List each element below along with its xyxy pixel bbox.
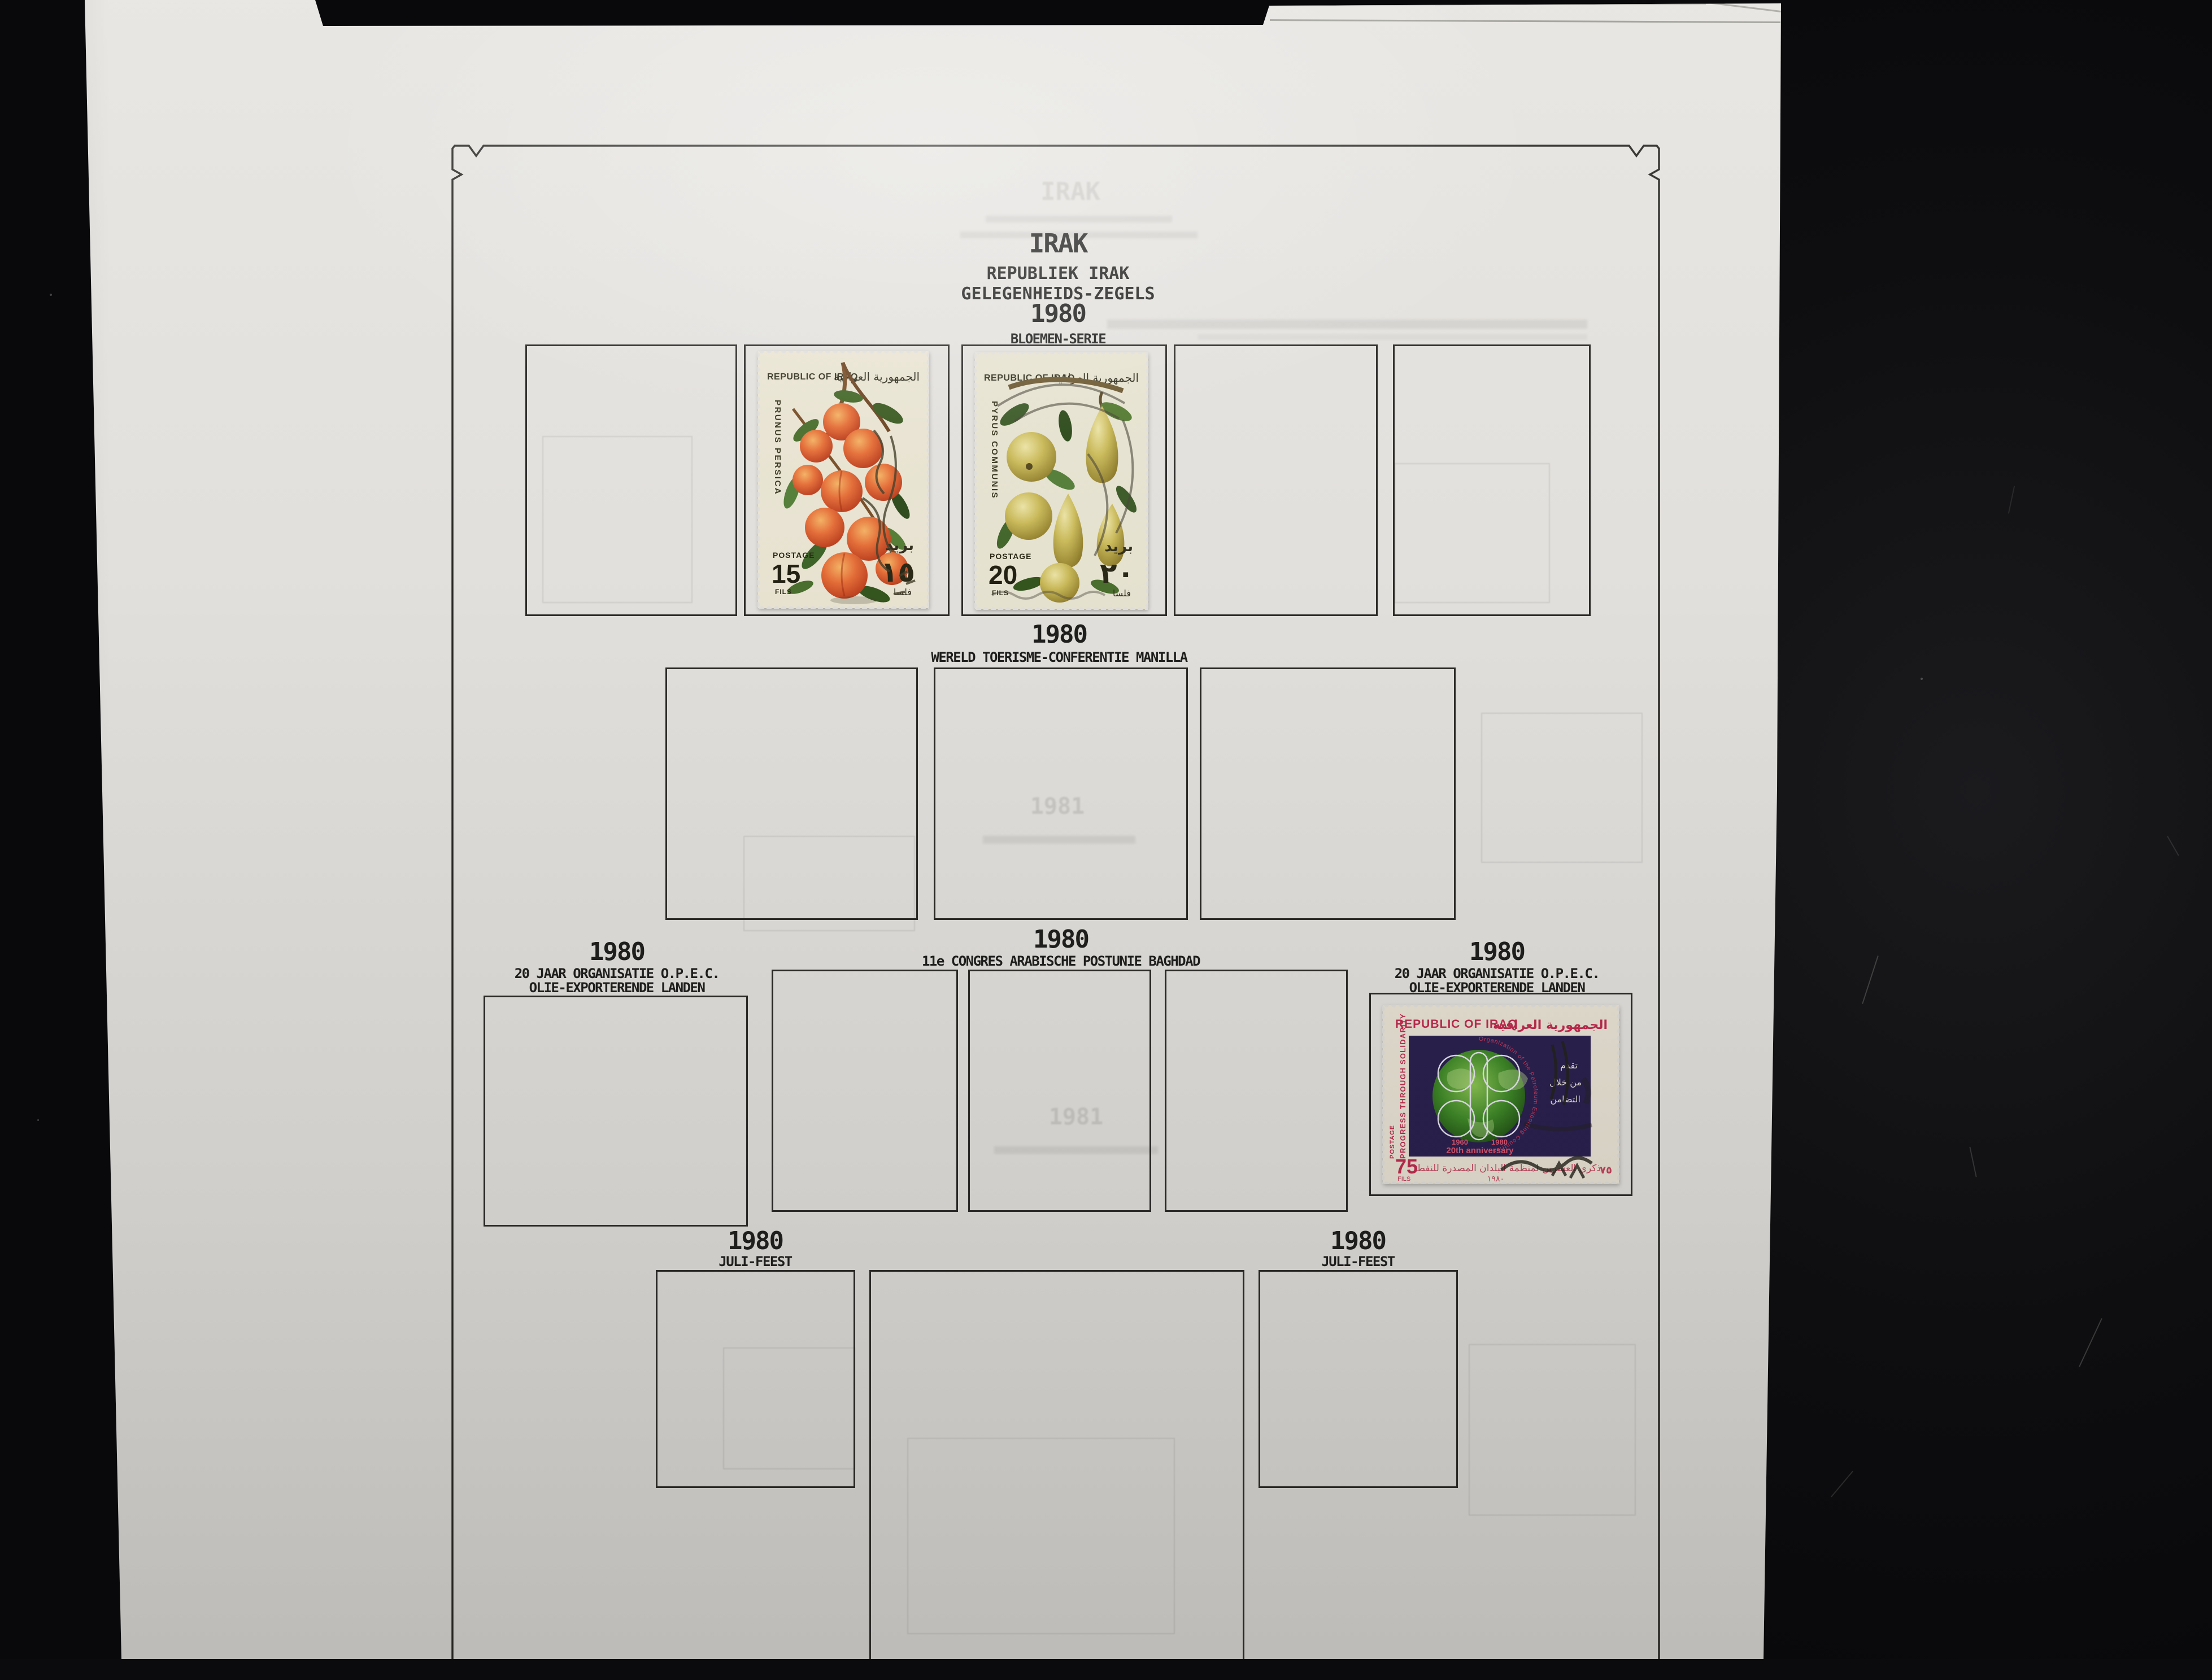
stamp-value: 20 [989, 560, 1017, 590]
section-bloemen-label: BLOEMEN-SERIE [832, 332, 1284, 346]
opec-bottom-year-arabic: ١٩٨٠ [1487, 1175, 1504, 1184]
stamp-postage-label: POSTAGE [1389, 1125, 1396, 1159]
stamp-country-arabic: الجمهورية العراقية [1493, 1018, 1608, 1032]
stamp-motto-label: PROGRESS THROUGH SOLIDARITY [1399, 1013, 1407, 1159]
opec-globe-panel: Organization of the Petroleum Exporting … [1409, 1036, 1591, 1157]
section-opec-right-line1: 20 JAAR ORGANISATIE O.P.E.C. [1271, 967, 1723, 980]
section-juli-right-year: 1980 [1132, 1229, 1584, 1254]
stamp-currency-arabic: فلسا [1113, 588, 1131, 599]
stamp-value: 75 [1395, 1155, 1418, 1178]
stamp-slot-empty [1259, 1270, 1458, 1488]
opec-anniversary-label: 20th anniversary [1446, 1146, 1514, 1155]
stamp-postage-label: POSTAGE [773, 551, 815, 560]
stamp-prunus-artwork: REPUBLIC OF IRAQ الجمهورية العراقية PRUN… [758, 351, 929, 608]
stamp-currency-label: FILS [1397, 1176, 1410, 1182]
section-toerisme-year: 1980 [833, 622, 1285, 647]
stamp-species-label: PRUNUS PERSICA [773, 400, 782, 495]
stamp-slot-empty [1165, 970, 1348, 1212]
stamp-pyrus-communis: REPUBLIC OF IRAQ الجمهورية العراقية PYRU… [975, 352, 1148, 609]
section-opec-right-year: 1980 [1271, 940, 1723, 965]
section-congres-label: 11e CONGRES ARABISCHE POSTUNIE BAGHDAD [835, 954, 1287, 968]
stamp-slot-empty [665, 667, 918, 920]
section-congres-year: 1980 [835, 927, 1287, 952]
stamp-postage-arabic: بريد [1104, 538, 1133, 555]
section-juli-left-year: 1980 [529, 1229, 981, 1254]
stamp-slot-empty-tall [869, 1270, 1244, 1680]
section-juli-left-label: JULI-FEEST [529, 1255, 981, 1268]
page-subtitle-1: REPUBLIEK IRAK [832, 265, 1284, 282]
section-opec-left-year: 1980 [391, 940, 843, 965]
stamp-slot-empty [772, 970, 958, 1212]
section-toerisme-label: WERELD TOERISME-CONFERENTIE MANILLA [833, 651, 1285, 664]
stamp-slot-empty [1393, 344, 1591, 616]
stamp-postage-label: POSTAGE [990, 552, 1031, 561]
stamp-slot-empty [968, 970, 1151, 1212]
stamp-currency-label: FILS [775, 588, 792, 596]
stamp-slot-empty [1200, 667, 1456, 920]
dust-speck [1921, 678, 1923, 680]
stamp-opec-anniversary: REPUBLIC OF IRAQ الجمهورية العراقية PROG… [1383, 1005, 1619, 1184]
dust-speck [50, 294, 52, 296]
stamp-value: 15 [772, 559, 800, 588]
stamp-prunus-persica: REPUBLIC OF IRAQ الجمهورية العراقية PRUN… [758, 351, 929, 608]
stamp-slot-empty [484, 996, 748, 1227]
photo-of-stamp-album: { "album": { "title": "IRAK", "subtitle1… [0, 0, 2212, 1659]
stamp-pyrus-artwork: REPUBLIC OF IRAQ الجمهورية العراقية PYRU… [975, 352, 1148, 609]
section-juli-right-label: JULI-FEEST [1132, 1255, 1584, 1268]
stamp-opec-artwork: REPUBLIC OF IRAQ الجمهورية العراقية PROG… [1383, 1005, 1619, 1184]
stamp-value-arabic: ٢٠ [1100, 557, 1134, 590]
opec-value-arabic: ٧٥ [1600, 1164, 1612, 1176]
stamp-slot-empty [1174, 344, 1378, 616]
opec-year-1980: 1980 [1491, 1138, 1508, 1146]
stamp-species-label: PYRUS COMMUNIS [990, 401, 999, 499]
stamp-slot-empty [525, 344, 737, 616]
dust-speck [37, 1119, 39, 1121]
page-title: IRAK [832, 230, 1284, 256]
stamp-slot-empty [656, 1270, 855, 1488]
stamp-slot-empty [934, 667, 1188, 920]
section-bloemen-year: 1980 [832, 302, 1284, 326]
opec-year-1960: 1960 [1452, 1138, 1468, 1146]
